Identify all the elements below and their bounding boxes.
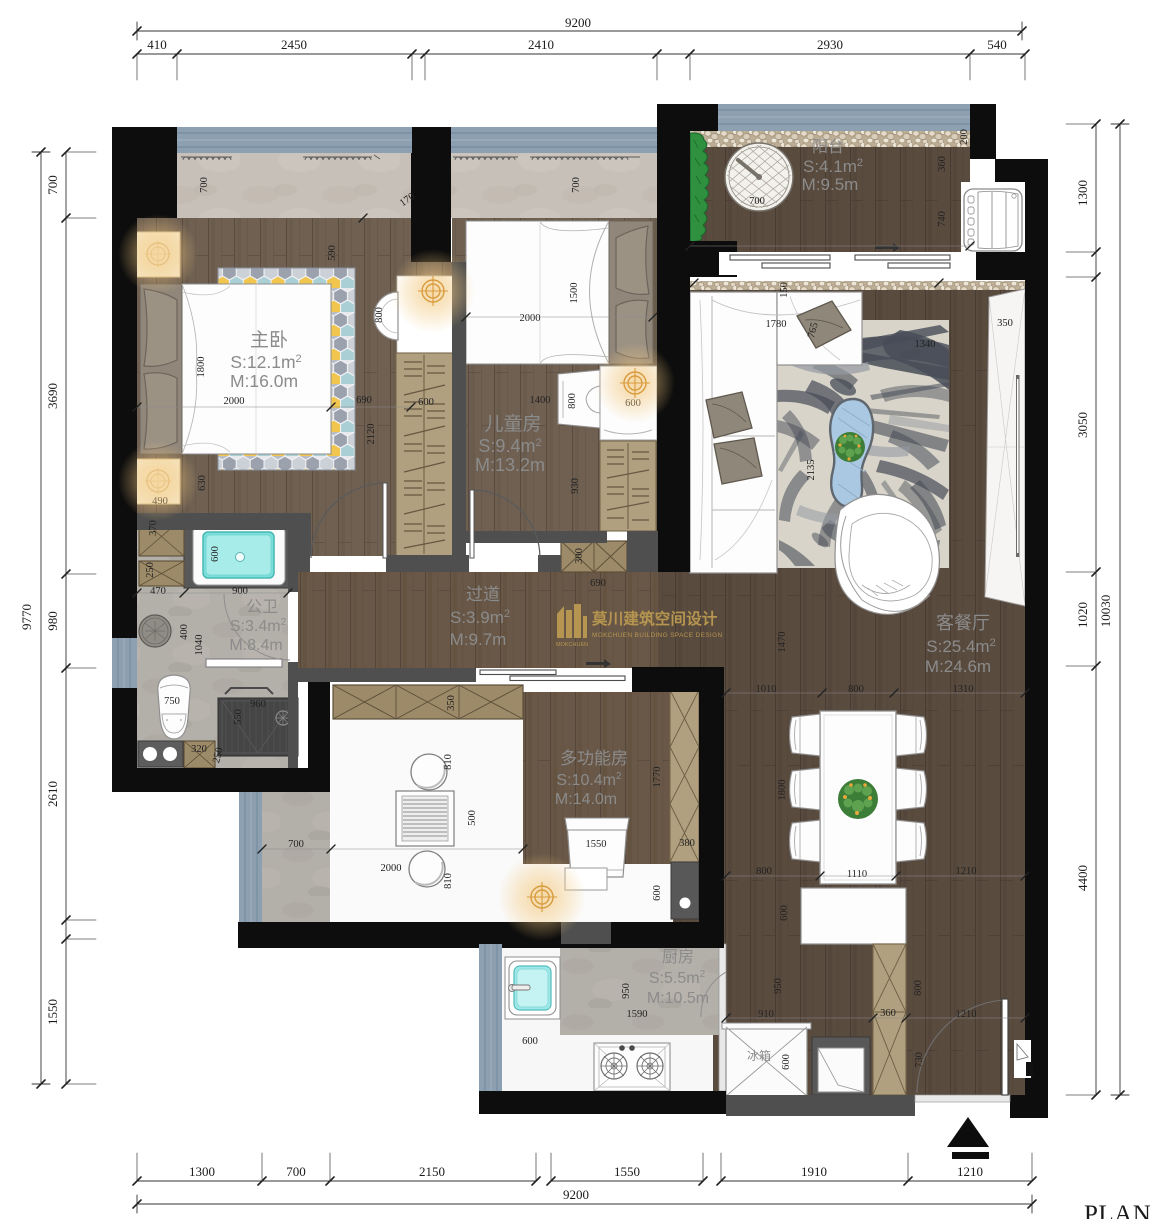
svg-text:1800: 1800 [777, 780, 788, 801]
svg-text:1300: 1300 [1075, 180, 1090, 206]
svg-text:1210: 1210 [956, 1009, 977, 1020]
svg-text:S:12.1m2: S:12.1m2 [230, 352, 301, 372]
svg-text:700: 700 [749, 196, 765, 207]
svg-text:540: 540 [987, 37, 1007, 52]
svg-text:2000: 2000 [381, 863, 402, 874]
svg-text:2000: 2000 [520, 313, 541, 324]
svg-text:4400: 4400 [1075, 865, 1090, 891]
svg-text:690: 690 [590, 578, 606, 589]
svg-text:M:9.7m: M:9.7m [450, 630, 507, 649]
svg-text:9200: 9200 [565, 15, 591, 30]
svg-text:810: 810 [443, 754, 454, 770]
svg-text:MOKCHUEN: MOKCHUEN [556, 642, 588, 648]
svg-text:1210: 1210 [957, 1164, 983, 1179]
svg-text:750: 750 [164, 696, 180, 707]
svg-text:2930: 2930 [817, 37, 843, 52]
svg-text:1400: 1400 [530, 395, 551, 406]
svg-text:S:4.1m2: S:4.1m2 [803, 157, 863, 176]
svg-text:2000: 2000 [224, 396, 245, 407]
svg-text:600: 600 [781, 1054, 792, 1070]
svg-text:630: 630 [197, 475, 208, 491]
svg-text:1550: 1550 [614, 1164, 640, 1179]
svg-text:1590: 1590 [627, 1009, 648, 1020]
svg-text:1040: 1040 [194, 635, 205, 656]
svg-text:600: 600 [522, 1036, 538, 1047]
svg-text:3050: 3050 [1075, 412, 1090, 438]
svg-text:200: 200 [959, 129, 970, 145]
svg-text:400: 400 [179, 624, 190, 640]
svg-text:360: 360 [880, 1008, 896, 1019]
svg-text:600: 600 [418, 397, 434, 408]
svg-text:950: 950 [621, 983, 632, 999]
svg-text:800: 800 [848, 684, 864, 695]
svg-text:910: 910 [758, 1009, 774, 1020]
svg-text:M:10.5m: M:10.5m [647, 990, 709, 1007]
svg-text:主卧: 主卧 [250, 329, 288, 351]
svg-text:690: 690 [356, 395, 372, 406]
svg-text:980: 980 [45, 611, 60, 631]
svg-text:700: 700 [199, 177, 210, 193]
svg-text:10030: 10030 [1098, 595, 1113, 628]
svg-text:470: 470 [150, 586, 166, 597]
svg-text:1550: 1550 [586, 839, 607, 850]
svg-text:350: 350 [997, 318, 1013, 329]
svg-text:950: 950 [773, 978, 784, 994]
svg-text:S:10.4m2: S:10.4m2 [556, 771, 622, 789]
svg-text:800: 800 [374, 307, 385, 323]
svg-text:2410: 2410 [528, 37, 554, 52]
svg-text:300: 300 [574, 548, 585, 564]
svg-text:1020: 1020 [1075, 602, 1090, 628]
svg-text:1340: 1340 [915, 339, 936, 350]
svg-text:700: 700 [286, 1164, 306, 1179]
svg-text:350: 350 [446, 695, 457, 711]
svg-text:550: 550 [233, 709, 244, 725]
svg-text:1010: 1010 [756, 684, 777, 695]
svg-text:M:16.0m: M:16.0m [230, 371, 298, 391]
svg-text:800: 800 [756, 866, 772, 877]
svg-text:S:3.9m2: S:3.9m2 [450, 608, 510, 627]
svg-text:1800: 1800 [196, 357, 207, 378]
svg-text:S:5.5m2: S:5.5m2 [649, 969, 706, 987]
svg-text:2610: 2610 [45, 781, 60, 807]
svg-text:700: 700 [45, 175, 60, 195]
svg-text:1310: 1310 [953, 684, 974, 695]
svg-text:1300: 1300 [189, 1164, 215, 1179]
svg-text:800: 800 [567, 393, 578, 409]
svg-text:410: 410 [147, 37, 167, 52]
svg-text:S:25.4m2: S:25.4m2 [926, 637, 995, 656]
svg-text:2150: 2150 [419, 1164, 445, 1179]
svg-text:S:3.4m2: S:3.4m2 [230, 617, 287, 635]
svg-text:810: 810 [443, 873, 454, 889]
svg-text:9200: 9200 [563, 1187, 589, 1202]
svg-text:700: 700 [288, 839, 304, 850]
svg-text:2135: 2135 [806, 460, 817, 481]
svg-text:M:24.6m: M:24.6m [925, 657, 991, 676]
svg-text:1500: 1500 [569, 283, 580, 304]
svg-text:320: 320 [191, 744, 207, 755]
svg-text:960: 960 [250, 699, 266, 710]
svg-text:370: 370 [148, 520, 159, 536]
svg-text:930: 930 [570, 478, 581, 494]
svg-text:360: 360 [937, 156, 948, 172]
svg-text:莫川建筑空间设计: 莫川建筑空间设计 [592, 609, 718, 628]
svg-text:590: 590 [327, 245, 338, 261]
svg-text:M:8.4m: M:8.4m [229, 637, 282, 654]
svg-text:600: 600 [652, 885, 663, 901]
svg-text:600: 600 [210, 546, 221, 562]
svg-text:过道: 过道 [466, 585, 500, 604]
svg-text:儿童房: 儿童房 [484, 413, 541, 435]
svg-text:730: 730 [914, 1052, 925, 1068]
svg-text:1770: 1770 [652, 767, 663, 788]
svg-text:380: 380 [679, 838, 695, 849]
svg-text:700: 700 [571, 177, 582, 193]
svg-text:1110: 1110 [847, 869, 867, 880]
svg-text:冰箱: 冰箱 [747, 1048, 771, 1063]
svg-text:900: 900 [232, 586, 248, 597]
svg-text:PLAN: PLAN [1084, 1201, 1150, 1219]
svg-text:M:14.0m: M:14.0m [555, 791, 617, 808]
svg-text:客餐厅: 客餐厅 [936, 613, 990, 633]
svg-text:M:13.2m: M:13.2m [475, 455, 545, 475]
svg-text:阳台: 阳台 [812, 138, 844, 156]
svg-text:740: 740 [937, 211, 948, 227]
svg-text:1550: 1550 [45, 999, 60, 1025]
svg-text:3690: 3690 [45, 383, 60, 409]
svg-text:9770: 9770 [19, 604, 34, 630]
svg-text:1210: 1210 [956, 866, 977, 877]
svg-text:2450: 2450 [281, 37, 307, 52]
svg-text:MOKCHUEN BUILDING SPACE DESIGN: MOKCHUEN BUILDING SPACE DESIGN [592, 632, 722, 639]
svg-text:多功能房: 多功能房 [560, 749, 628, 768]
svg-text:1910: 1910 [801, 1164, 827, 1179]
svg-text:250: 250 [145, 562, 156, 578]
svg-text:1470: 1470 [777, 632, 788, 653]
svg-text:600: 600 [779, 905, 790, 921]
svg-text:2120: 2120 [366, 424, 377, 445]
svg-text:M:9.5m: M:9.5m [802, 175, 859, 194]
svg-text:S:9.4m2: S:9.4m2 [478, 436, 541, 456]
svg-text:厨房: 厨房 [662, 948, 694, 966]
svg-text:150: 150 [779, 282, 790, 298]
svg-text:800: 800 [913, 980, 924, 996]
svg-text:500: 500 [467, 810, 478, 826]
svg-text:1780: 1780 [766, 319, 787, 330]
svg-text:公卫: 公卫 [246, 599, 278, 616]
